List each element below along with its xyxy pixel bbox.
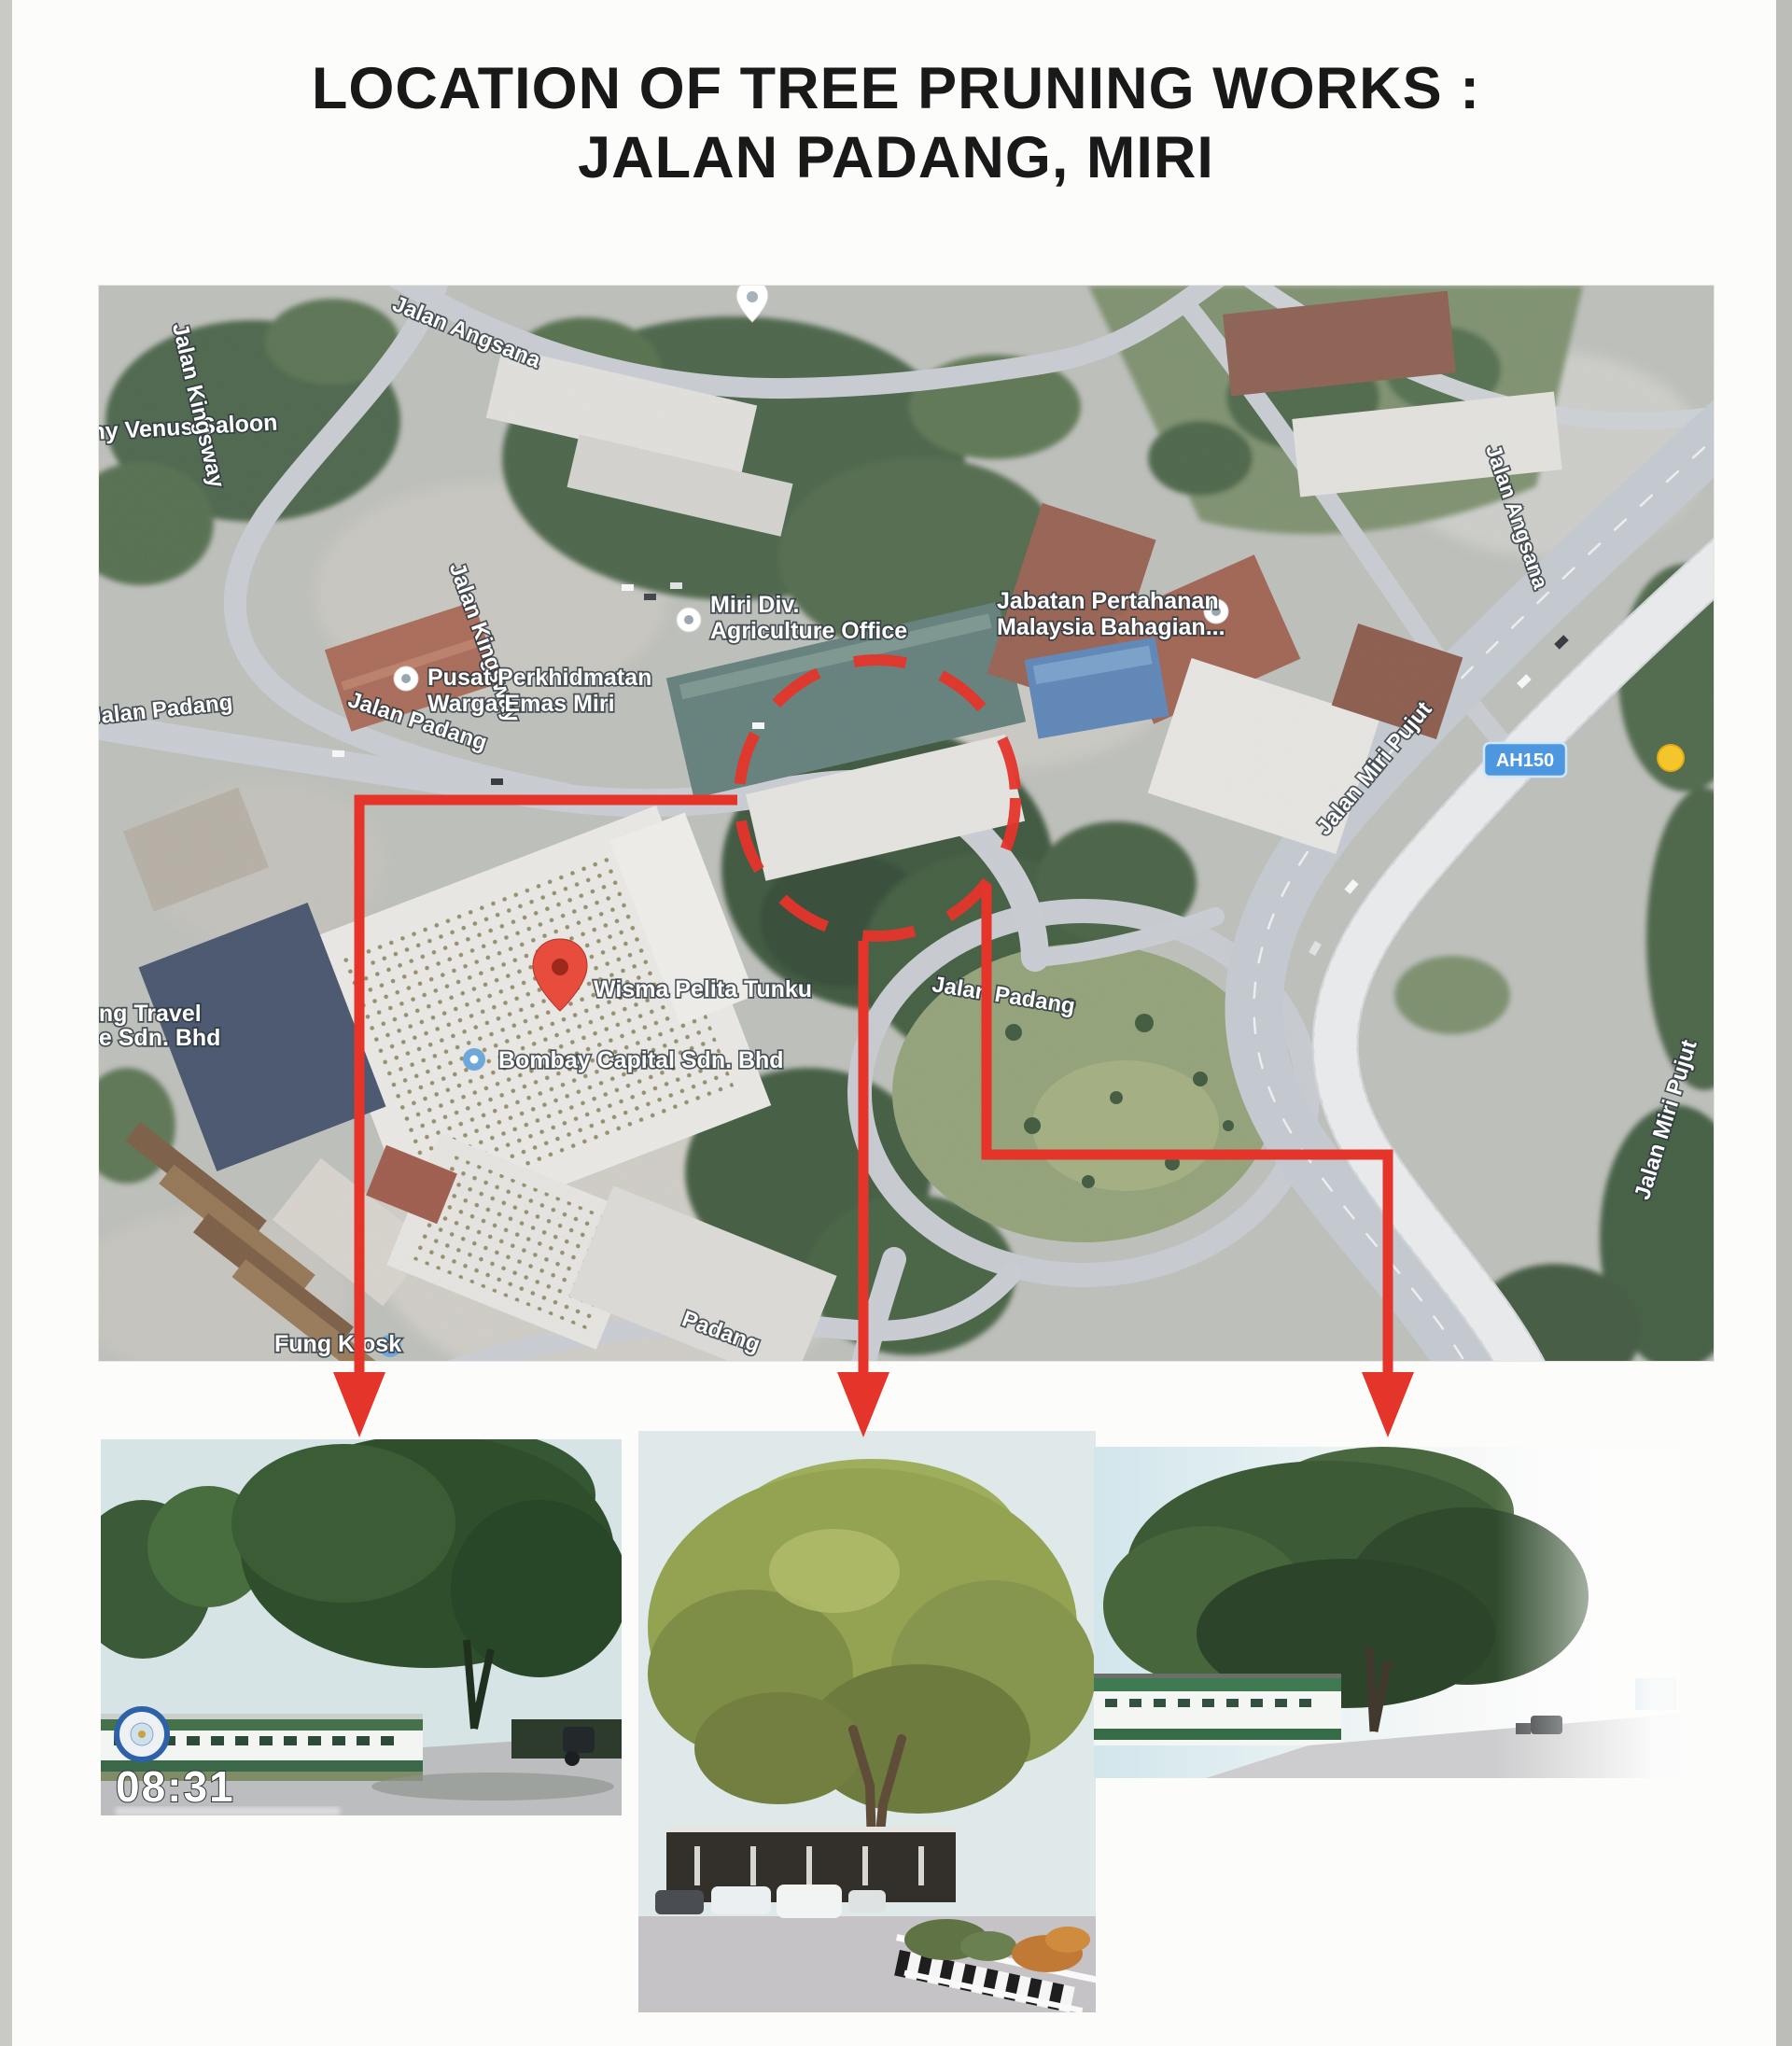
photo3-building xyxy=(1094,1674,1341,1745)
place-marker-agriculture-icon xyxy=(677,608,701,632)
photo-timestamp: 08:31 xyxy=(116,1762,235,1811)
arrowhead-1-icon xyxy=(333,1372,385,1437)
label-fung-kiosk: Fung Kiosk xyxy=(274,1331,401,1357)
photo-caption-blur xyxy=(116,1807,340,1815)
label-pusat-line1: Pusat Perkhidmatan xyxy=(427,665,651,691)
map-tint xyxy=(99,286,1714,1361)
scan-edge-left xyxy=(0,0,12,2046)
scan-edge-right xyxy=(1776,0,1792,2046)
satellite-map: AH150 Jalan Angsana Jalan Angsana ny Ven… xyxy=(99,286,1714,1361)
page-title: LOCATION OF TREE PRUNING WORKS : JALAN P… xyxy=(0,54,1792,192)
label-jabatan-line2: Malaysia Bahagian... xyxy=(997,614,1225,640)
photo1-shadow xyxy=(371,1773,614,1801)
arrowhead-2-icon xyxy=(837,1372,889,1437)
site-photo-2 xyxy=(638,1431,1096,2012)
route-badge: AH150 xyxy=(1484,743,1566,777)
label-travel-line1: ang Travel xyxy=(99,1001,202,1027)
document-page: LOCATION OF TREE PRUNING WORKS : JALAN P… xyxy=(0,0,1792,2046)
site-photo-3 xyxy=(1094,1447,1680,1778)
label-travel-line2: ce Sdn. Bhd xyxy=(99,1025,220,1051)
title-line-1: LOCATION OF TREE PRUNING WORKS : xyxy=(0,54,1792,123)
title-line-2: JALAN PADANG, MIRI xyxy=(0,123,1792,192)
arrowhead-3-icon xyxy=(1362,1372,1414,1437)
label-pusat-line2: Warga Emas Miri xyxy=(427,691,615,717)
site-photo-1: 08:31 xyxy=(101,1439,622,1815)
route-badge-label: AH150 xyxy=(1496,750,1554,771)
label-jabatan-line1: Jabatan Pertahanan xyxy=(997,588,1219,614)
label-wisma: Wisma Pelita Tunku xyxy=(594,976,812,1002)
place-marker-bombay-icon xyxy=(463,1048,485,1071)
place-marker-pusat-icon xyxy=(394,666,418,691)
photo3-fade xyxy=(1495,1447,1680,1778)
yellow-marker-icon xyxy=(1658,745,1684,771)
label-bombay: Bombay Capital Sdn. Bhd xyxy=(498,1047,784,1073)
label-miri-div-line2: Agriculture Office xyxy=(710,618,907,644)
label-miri-div-line1: Miri Div. xyxy=(710,592,799,618)
gps-emblem-icon xyxy=(117,1709,167,1759)
